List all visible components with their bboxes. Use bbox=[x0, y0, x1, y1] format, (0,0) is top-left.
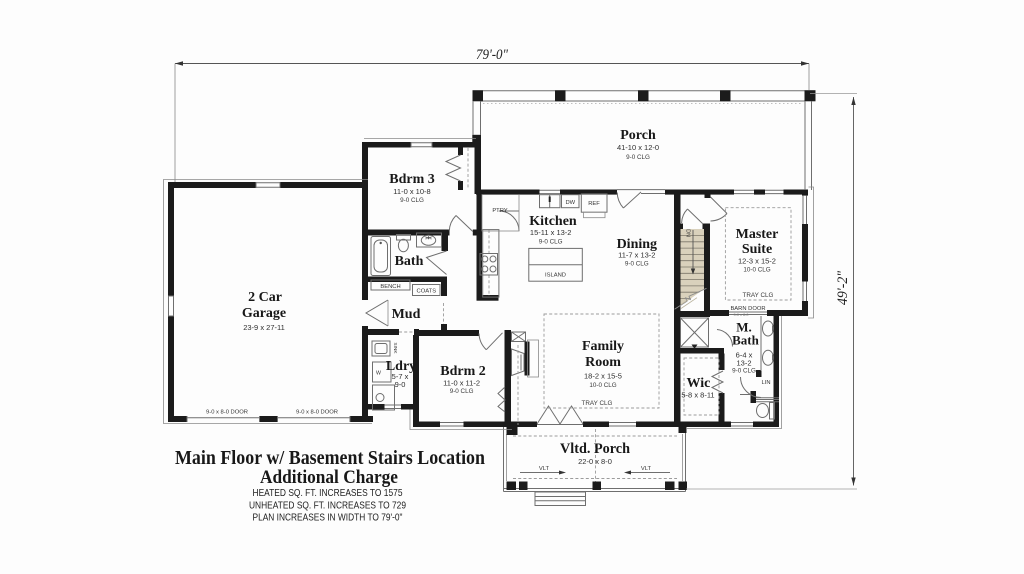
svg-text:Bath: Bath bbox=[395, 254, 424, 269]
svg-text:11-0 x 11-2: 11-0 x 11-2 bbox=[443, 379, 480, 388]
svg-text:Porch: Porch bbox=[620, 128, 656, 143]
svg-text:13-2: 13-2 bbox=[736, 359, 751, 368]
svg-text:Main Floor w/ Basement Stairs: Main Floor w/ Basement Stairs Location bbox=[175, 447, 485, 469]
svg-text:VLT: VLT bbox=[641, 466, 652, 472]
svg-text:BARN DOOR: BARN DOOR bbox=[730, 306, 765, 312]
svg-text:12-3 x 15-2: 12-3 x 15-2 bbox=[738, 257, 776, 266]
svg-text:PTRY: PTRY bbox=[492, 208, 507, 214]
svg-text:Bdrm 2: Bdrm 2 bbox=[440, 364, 486, 379]
svg-text:COATS: COATS bbox=[417, 289, 437, 295]
svg-text:Bath: Bath bbox=[732, 333, 760, 348]
svg-text:Room: Room bbox=[585, 355, 621, 370]
svg-text:Additional Charge: Additional Charge bbox=[260, 467, 398, 488]
svg-text:DN: DN bbox=[685, 229, 691, 237]
svg-text:11-0 x 10-8: 11-0 x 10-8 bbox=[393, 187, 430, 196]
svg-text:UNHEATED SQ. FT. INCREASES TO: UNHEATED SQ. FT. INCREASES TO 729 bbox=[249, 500, 406, 512]
svg-text:DW: DW bbox=[565, 200, 575, 206]
svg-text:79'-0": 79'-0" bbox=[476, 47, 509, 63]
svg-text:Family: Family bbox=[582, 339, 624, 354]
svg-text:REF: REF bbox=[588, 201, 600, 207]
svg-text:9-0 x 8-0 DOOR: 9-0 x 8-0 DOOR bbox=[296, 410, 338, 416]
svg-text:TRAY CLG: TRAY CLG bbox=[743, 292, 774, 299]
svg-text:9-0 CLG: 9-0 CLG bbox=[450, 388, 474, 395]
svg-text:22-0 x 8-0: 22-0 x 8-0 bbox=[578, 457, 612, 466]
svg-text:VLT: VLT bbox=[539, 466, 550, 472]
svg-text:23-9 x 27-11: 23-9 x 27-11 bbox=[243, 323, 285, 332]
svg-text:15-11 x 13-2: 15-11 x 13-2 bbox=[530, 228, 572, 237]
svg-text:5-8 x 8-11: 5-8 x 8-11 bbox=[681, 391, 714, 400]
svg-text:Master: Master bbox=[736, 227, 779, 242]
svg-text:10-0 CLG: 10-0 CLG bbox=[743, 267, 770, 274]
svg-text:Wic: Wic bbox=[686, 376, 710, 391]
svg-text:W: W bbox=[376, 371, 381, 377]
svg-text:9-0: 9-0 bbox=[395, 380, 406, 389]
svg-text:Mud: Mud bbox=[392, 307, 421, 322]
svg-text:9-0 x 8-0 DOOR: 9-0 x 8-0 DOOR bbox=[206, 410, 248, 416]
svg-text:TRAY CLG: TRAY CLG bbox=[582, 400, 613, 407]
svg-text:2 Car: 2 Car bbox=[248, 290, 282, 305]
svg-text:SINK: SINK bbox=[392, 342, 398, 354]
svg-text:Suite: Suite bbox=[742, 242, 772, 257]
svg-text:9-0 CLG: 9-0 CLG bbox=[626, 154, 650, 161]
svg-text:PLAN INCREASES IN WIDTH TO 79': PLAN INCREASES IN WIDTH TO 79'-0" bbox=[253, 512, 403, 524]
svg-text:Bdrm 3: Bdrm 3 bbox=[389, 172, 435, 187]
svg-text:9-0 x 8-0: 9-0 x 8-0 bbox=[734, 313, 749, 317]
svg-text:9-0 CLG: 9-0 CLG bbox=[400, 197, 424, 204]
svg-text:Kitchen: Kitchen bbox=[529, 214, 577, 229]
svg-text:Garage: Garage bbox=[242, 306, 286, 321]
svg-text:18-2 x 15-5: 18-2 x 15-5 bbox=[584, 372, 622, 381]
svg-text:10-0 CLG: 10-0 CLG bbox=[589, 382, 616, 389]
svg-text:ISLAND: ISLAND bbox=[545, 273, 566, 279]
svg-text:HEATED SQ. FT. INCREASES TO 15: HEATED SQ. FT. INCREASES TO 1575 bbox=[253, 487, 403, 499]
svg-text:9-0 CLG: 9-0 CLG bbox=[732, 368, 756, 375]
svg-text:49'-2": 49'-2" bbox=[835, 270, 851, 305]
svg-text:LIN: LIN bbox=[761, 380, 770, 386]
svg-text:9-0 CLG: 9-0 CLG bbox=[625, 261, 649, 268]
svg-text:9-0 CLG: 9-0 CLG bbox=[539, 239, 563, 246]
svg-text:41-10 x 12-0: 41-10 x 12-0 bbox=[617, 143, 659, 152]
svg-text:Vltd. Porch: Vltd. Porch bbox=[560, 441, 631, 457]
svg-text:BENCH: BENCH bbox=[380, 284, 400, 290]
svg-text:11-7 x 13-2: 11-7 x 13-2 bbox=[618, 251, 655, 260]
